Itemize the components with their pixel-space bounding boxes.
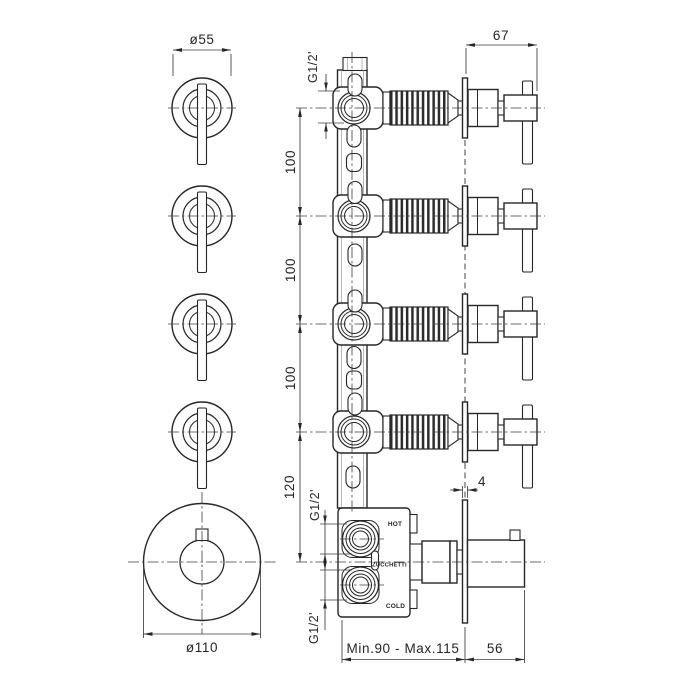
dimension-valve-spacing-chain: 100 100 100 120 (282, 108, 302, 562)
handle-front-view-3 (172, 294, 232, 381)
thermostatic-mixer-side-view: HOT ZUCCHETTI COLD (338, 500, 525, 623)
handle-front-view-1 (172, 78, 232, 165)
valve-technical-drawing: HOT ZUCCHETTI COLD (0, 0, 700, 700)
svg-text:G1/2': G1/2' (307, 612, 321, 644)
svg-text:100: 100 (283, 150, 298, 174)
svg-text:4: 4 (478, 474, 486, 489)
cold-port-label: COLD (386, 603, 405, 610)
hot-port-label: HOT (388, 521, 402, 528)
svg-text:G1/2': G1/2' (308, 489, 322, 521)
mixer-knob (468, 540, 525, 587)
svg-text:120: 120 (282, 475, 297, 499)
svg-text:100: 100 (283, 258, 298, 282)
technical-drawing-page: HOT ZUCCHETTI COLD (0, 0, 700, 700)
handle-front-view-2 (172, 186, 232, 273)
svg-text:56: 56 (487, 641, 503, 656)
svg-text:ø110: ø110 (186, 640, 218, 655)
handle-front-view-4 (172, 402, 232, 489)
svg-text:ø55: ø55 (189, 32, 214, 47)
mixer-wall-plate (463, 500, 468, 623)
dimension-plate-thickness: 4 (450, 474, 486, 498)
dimension-installation-depth: Min.90 - Max.115 (342, 620, 465, 663)
svg-text:Min.90 - Max.115: Min.90 - Max.115 (347, 641, 460, 656)
dimension-knob-projection: 56 (465, 590, 525, 663)
svg-text:67: 67 (493, 28, 509, 43)
mixer-knob-tab (510, 530, 520, 541)
svg-text:G1/2': G1/2' (306, 51, 320, 83)
dimension-handle-diameter: ø55 (173, 32, 231, 76)
svg-text:100: 100 (283, 366, 298, 390)
brand-label: ZUCCHETTI (372, 563, 407, 569)
